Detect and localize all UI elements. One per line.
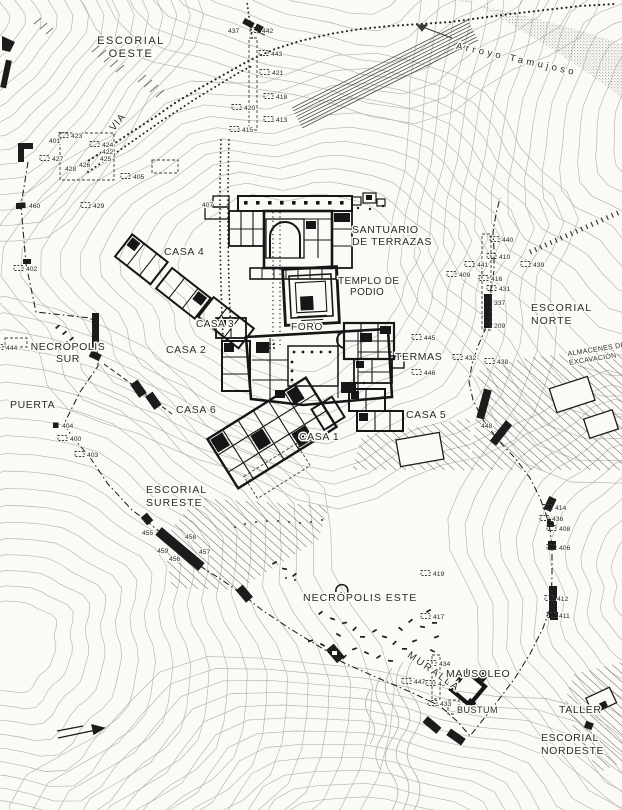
findspot-442: 442 <box>262 28 274 35</box>
findspot-424: 424 <box>102 142 114 149</box>
findspot-402: 402 <box>26 266 38 273</box>
label-taller: TALLER <box>559 704 602 716</box>
contour-line <box>0 522 138 771</box>
label-casa-1: CASA 1 <box>299 431 339 443</box>
ruin-dot <box>310 521 312 523</box>
label-text-escorial-norte-1: NORTE <box>531 315 573 327</box>
label-text-necropolis-este-0: NECRÓPOLIS ESTE <box>303 591 417 604</box>
ruin-mark <box>432 622 437 624</box>
ruin-mark <box>330 617 335 620</box>
river-flow-arrow <box>417 25 452 38</box>
edge-wall-bit-2 <box>0 60 12 89</box>
contour-line <box>139 169 455 401</box>
findspot-409: 409 <box>459 272 471 279</box>
ruin-marks-layer <box>55 325 439 662</box>
ruin-dot <box>321 519 323 521</box>
findspot-407: 407 <box>202 202 214 209</box>
label-text-puerta-0: PUERTA <box>10 399 55 411</box>
findspot-408: 408 <box>559 526 571 533</box>
ruin-mark <box>408 619 413 624</box>
findspot-438: 438 <box>497 359 509 366</box>
ruin-mark <box>62 331 67 336</box>
label-text-escorial-nordeste-1: NORDESTE <box>541 745 604 757</box>
ruin-mark <box>402 648 407 650</box>
findspot-458: 458 <box>185 534 197 541</box>
contour-line <box>174 0 477 14</box>
findspot-418: 418 <box>276 94 288 101</box>
label-text-casa-5-0: CASA 5 <box>406 409 446 421</box>
findspot-417: 417 <box>433 614 445 621</box>
ruin-dot <box>244 523 246 525</box>
contour-line <box>0 506 156 787</box>
road-hachure-line <box>302 40 478 128</box>
ruin-mark <box>430 649 435 653</box>
label-text-escorial-oeste-1: OESTE <box>109 48 154 60</box>
label-text-taller-0: TALLER <box>559 704 602 716</box>
label-escorial-oeste: ESCORIALOESTE <box>97 35 165 60</box>
ruin-mark <box>364 651 369 655</box>
label-text-via-0: VIA <box>108 112 129 134</box>
contour-line <box>0 555 106 741</box>
findspot-trench-marker-413 <box>264 117 273 122</box>
label-text-templo-de-podio-0: TEMPLO DE <box>338 276 399 287</box>
findspot-209: 209 <box>494 323 506 330</box>
findspot-400: 400 <box>70 436 82 443</box>
stone-row-line <box>530 212 620 252</box>
contour-line <box>0 0 149 205</box>
tower-notch <box>332 651 337 655</box>
findspot-425: 425 <box>100 156 112 163</box>
wall-tower <box>550 612 558 620</box>
label-casa-3: CASA 3 <box>196 319 234 330</box>
findspot-448: 448 <box>481 423 493 430</box>
ruin-mark <box>434 635 439 638</box>
label-casa-2: CASA 2 <box>166 344 206 356</box>
label-casa-6: CASA 6 <box>176 404 216 416</box>
wall-tower <box>141 513 154 526</box>
findspot-443: 443 <box>271 51 283 58</box>
ruin-mark <box>318 611 323 616</box>
findspot-420: 420 <box>244 105 256 112</box>
findspot-441: 441 <box>477 262 489 269</box>
templo-de-podio-plan <box>283 267 340 326</box>
label-text-bustum-0: BUSTUM <box>457 705 498 715</box>
label-foro: FORO <box>291 322 323 333</box>
ruin-dot <box>266 520 268 522</box>
findspot-trench-marker-444 <box>0 345 3 350</box>
label-necropolis-este: NECRÓPOLIS ESTE <box>303 591 417 604</box>
findspot-459: 459 <box>157 548 169 555</box>
contour-line <box>0 601 57 693</box>
label-puerta: PUERTA <box>10 399 55 411</box>
findspot-440: 440 <box>502 237 514 244</box>
findspot-trench-marker-438 <box>485 359 494 364</box>
contour-line <box>213 797 522 810</box>
findspot-416: 416 <box>491 276 503 283</box>
findspot-428: 428 <box>65 166 77 173</box>
ruin-mark <box>342 622 347 625</box>
label-text-casa-2-0: CASA 2 <box>166 344 206 356</box>
ruin-dot <box>234 526 236 528</box>
label-text-necropolis-sur-1: SUR <box>56 353 80 365</box>
label-text-escorial-norte-0: ESCORIAL <box>531 302 592 314</box>
label-text-escorial-oeste-0: ESCORIAL <box>97 35 165 47</box>
label-text-santuario-de-terrazas-1: DE TERRAZAS <box>352 236 432 248</box>
stream-gully-contours <box>366 658 421 810</box>
findspot-446: 446 <box>424 370 436 377</box>
ruin-mark <box>382 635 387 638</box>
findspot-solid-marker-404 <box>53 423 59 429</box>
ruin-dot <box>277 520 279 522</box>
contour-line <box>0 0 89 142</box>
findspot-432: 432 <box>465 355 477 362</box>
label-templo-de-podio: TEMPLO DEPODIO <box>338 276 399 298</box>
label-text-necropolis-sur-0: NECRÓPOLIS <box>31 340 106 353</box>
label-text-foro-0: FORO <box>291 322 323 333</box>
contour-line <box>0 0 163 220</box>
findspot-423: 423 <box>71 133 83 140</box>
label-casa-5: CASA 5 <box>406 409 446 421</box>
ruin-mark <box>352 647 357 650</box>
findspot-trench-marker-400 <box>58 436 67 441</box>
label-casa-4: CASA 4 <box>164 246 204 258</box>
escorial-sureste-hatch <box>163 498 330 590</box>
findspot-412: 412 <box>557 596 569 603</box>
ruin-mark <box>336 633 341 637</box>
ruin-mark <box>282 568 287 571</box>
contour-line <box>149 0 497 31</box>
label-text-casa-6-0: CASA 6 <box>176 404 216 416</box>
road-hachure-line <box>295 26 471 114</box>
findspot-trench-marker-417 <box>421 614 430 619</box>
wall-bit-top-1 <box>242 18 255 28</box>
label-text-casa-4-0: CASA 4 <box>164 246 204 258</box>
findspot-455: 455 <box>142 530 154 537</box>
ruin-mark <box>398 627 403 632</box>
findspot-403: 403 <box>87 452 99 459</box>
ruin-mark <box>376 655 381 659</box>
trench-405-w <box>152 160 178 173</box>
findspot-457: 457 <box>199 549 211 556</box>
findspot-431: 431 <box>499 286 511 293</box>
contour-line <box>195 783 544 810</box>
label-text-termas-0: TERMAS <box>395 351 442 363</box>
ruin-mark <box>392 640 397 645</box>
findspot-trench-marker-402 <box>14 266 23 271</box>
label-text-templo-de-podio-1: PODIO <box>350 287 384 298</box>
findspot-414: 414 <box>555 505 567 512</box>
label-termas: TERMAS <box>395 351 442 363</box>
findspot-trench-marker-446 <box>412 370 421 375</box>
label-via: VIA <box>108 112 129 134</box>
findspot-410: 410 <box>499 254 511 261</box>
contour-line <box>612 523 622 639</box>
label-escorial-norte: ESCORIALNORTE <box>531 302 592 327</box>
label-bustum: BUSTUM <box>457 705 498 715</box>
ruin-mark <box>412 639 417 642</box>
ruin-mark <box>388 660 393 662</box>
findspot-trench-marker-421 <box>260 70 269 75</box>
trench-strip-top <box>249 38 257 130</box>
ruin-mark <box>360 636 365 638</box>
site-plan-page: 4374424434214184204134154014234244224254… <box>0 0 622 810</box>
contour-line <box>32 669 622 810</box>
contour-line <box>0 471 191 810</box>
findspot-411: 411 <box>559 613 570 620</box>
findspot-solid-marker-460 <box>20 203 26 209</box>
contour-line <box>565 474 622 693</box>
contour-line <box>596 506 622 656</box>
contour-line <box>0 586 73 709</box>
wall-tower <box>23 259 31 264</box>
ruin-dot <box>285 577 287 579</box>
findspot-406: 406 <box>559 545 571 552</box>
road-hachure-line <box>299 34 475 122</box>
findspot-429: 429 <box>93 203 105 210</box>
findspot-426: 426 <box>79 162 91 169</box>
road-hachure-line <box>292 20 468 108</box>
archaeological-map-canvas: 4374424434214184204134154014234244224254… <box>0 0 622 810</box>
label-santuario-de-terrazas: SANTUARIODE TERRAZAS <box>352 224 432 248</box>
findspot-404: 404 <box>62 423 74 430</box>
label-text-casa-3-0: CASA 3 <box>196 319 234 330</box>
ruin-mark <box>420 626 425 629</box>
puerta-tower-2 <box>145 392 162 410</box>
findspot-401: 401 <box>49 138 61 145</box>
findspot-444: 444 <box>6 345 18 352</box>
label-text-santuario-de-terrazas-0: SANTUARIO <box>352 224 419 236</box>
label-escorial-nordeste: ESCORIALNORDESTE <box>541 732 604 757</box>
ruin-dot <box>299 522 301 524</box>
label-text-escorial-sureste-0: ESCORIAL <box>146 484 207 496</box>
findspot-421: 421 <box>272 70 284 77</box>
misc-symbols <box>34 18 348 738</box>
label-text-mausoleo-0: MAUSOLEO <box>446 668 510 680</box>
label-text-escorial-nordeste-0: ESCORIAL <box>541 732 599 744</box>
ruin-dot <box>255 521 257 523</box>
contour-line <box>21 83 550 484</box>
contour-line <box>0 418 247 810</box>
findspot-trench-marker-424 <box>90 142 99 147</box>
label-escorial-sureste: ESCORIALSURESTE <box>146 484 207 509</box>
findspot-419: 419 <box>433 571 445 578</box>
contour-line <box>0 0 104 158</box>
findspot-422: 422 <box>102 149 114 156</box>
ruin-dot <box>288 521 290 523</box>
label-mausoleo: MAUSOLEO <box>446 668 510 680</box>
findspot-456: 456 <box>169 556 181 563</box>
ruin-mark <box>372 629 377 633</box>
label-text-escorial-sureste-1: SURESTE <box>146 497 203 509</box>
findspot-413: 413 <box>276 117 288 124</box>
findspot-434: 434 <box>439 661 451 668</box>
findspot-447: 447 <box>414 679 426 686</box>
findspot-460: 460 <box>29 203 41 210</box>
wall-corner-tower-nw <box>18 143 33 162</box>
findspot-439: 439 <box>533 262 545 269</box>
ruin-mark <box>320 643 325 647</box>
findspot-337: 337 <box>494 300 506 307</box>
findspot-trench-marker-420 <box>232 105 241 110</box>
ruin-mark <box>55 325 60 330</box>
findspot-445: 445 <box>424 335 436 342</box>
trench-casa1-s <box>244 444 310 499</box>
edge-wall-bit-1 <box>2 36 15 52</box>
findspot-437: 437 <box>228 28 240 35</box>
contour-line <box>0 0 57 111</box>
findspot-trench-marker-419 <box>421 571 430 576</box>
findspot-433: 433 <box>440 701 452 708</box>
findspot-436: 436 <box>552 516 564 523</box>
ruin-mark <box>426 609 431 613</box>
wall-tower <box>548 541 556 550</box>
findspot-trench-marker-403 <box>75 452 84 457</box>
findspot-415: 415 <box>242 127 254 134</box>
ruin-dot <box>294 579 296 581</box>
label-text-casa-1-0: CASA 1 <box>299 431 339 443</box>
findspot-405: 405 <box>133 174 145 181</box>
ruin-mark <box>352 626 357 631</box>
findspot-427: 427 <box>52 156 64 163</box>
